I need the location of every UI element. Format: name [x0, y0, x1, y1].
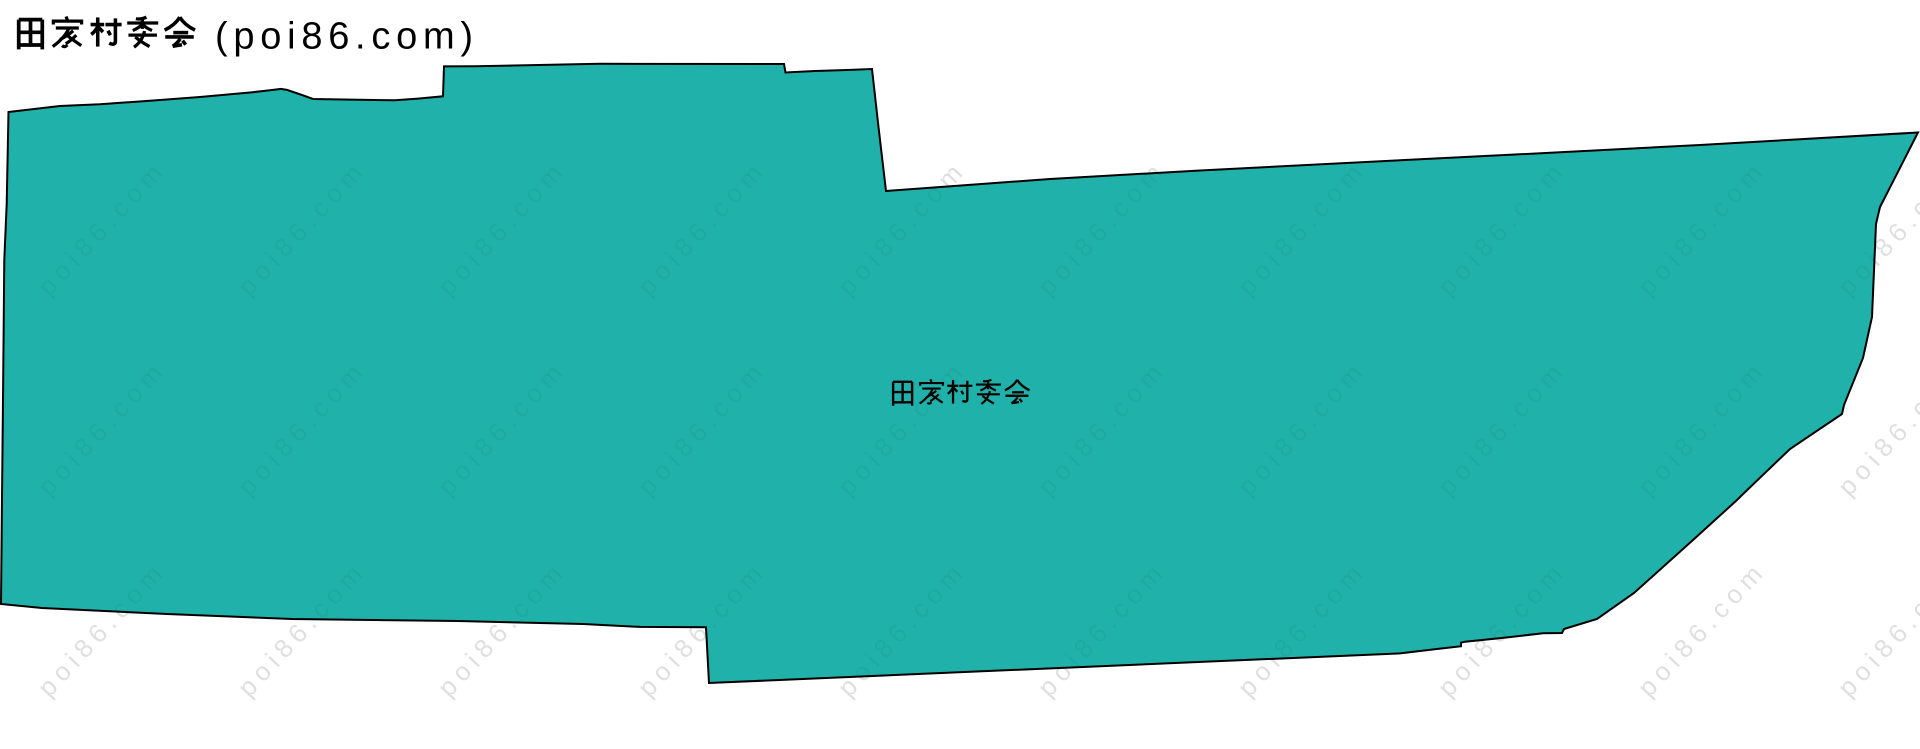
svg-text:(poi86.com): (poi86.com) — [215, 16, 473, 58]
